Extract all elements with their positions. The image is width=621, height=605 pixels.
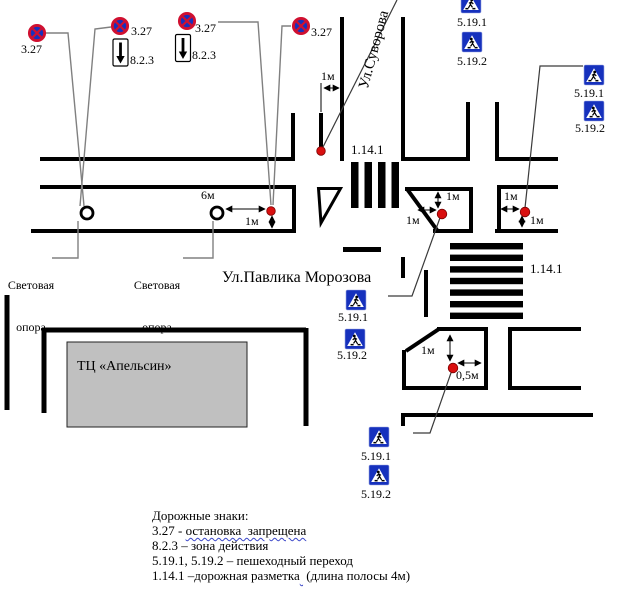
light-pole-label-line1: Световая [127,278,187,292]
leader-line [80,27,111,206]
sign-label-327: 3.27 [21,43,42,56]
sign-label-823: 8.2.3 [130,54,154,67]
light-pole-label: Световая опора [127,250,187,348]
sign-label-5191: 5.19.1 [361,450,391,463]
dimension-label-1m: 1м [406,214,420,227]
sign-position-dot [267,207,276,216]
sign-label-327: 3.27 [311,26,332,39]
pedestrian-crossing-sign-icon [369,465,389,485]
pedestrian-crossing-sign-icon [584,101,604,121]
legend-item-823: 8.2.3 – зона действия [152,538,410,553]
pedestrian-crossing-sign-icon [346,290,366,310]
sign-label-5192: 5.19.2 [337,349,367,362]
street-name-morozova: Ул.Павлика Морозова [222,270,371,287]
no-stopping-sign-icon [29,25,44,40]
building-label: ТЦ «Апельсин» [77,360,172,375]
light-pole-label-line2: опора [1,320,61,334]
zone-arrow-sign-icon [113,39,128,66]
legend-item-519: 5.19.1, 5.19.2 – пешеходный переход [152,553,410,568]
marking-label-1141: 1.14.1 [530,262,563,276]
legend-item-1141-prefix: 1.14.1 –дорожная разметка [152,568,300,583]
zone-arrow-sign-icon [176,35,191,62]
legend-item-327-prefix: 3.27 - [152,523,186,538]
sign-position-dot [520,207,530,217]
dimension-label-1m: 1м [530,214,544,227]
dimension-label-1m: 1м [245,215,259,228]
pedestrian-crossing-sign-icon [461,0,481,13]
light-pole-label-line1: Световая [1,278,61,292]
stop-line-marking [343,247,381,252]
sign-label-327: 3.27 [131,25,152,38]
sign-label-5192: 5.19.2 [575,122,605,135]
shopping-center-block [67,342,247,427]
crosswalk-horizontal-1141 [450,243,523,319]
light-pole-label-line2: опора [127,320,187,334]
sign-position-dot [437,209,447,219]
dimension-label-1m: 1м [421,344,435,357]
legend: Дорожные знаки: 3.27 - остановка запреще… [152,508,410,583]
no-stopping-sign-icon [179,13,194,28]
sign-label-5192: 5.19.2 [457,55,487,68]
legend-item-1141-suffix: (длина полосы 4м) [303,568,410,583]
light-pole-2 [211,207,223,219]
pedestrian-crossing-sign-icon [369,427,389,447]
dimension-label-05m: 0,5м [456,369,479,382]
sign-position-dot [317,147,326,156]
sign-label-5191: 5.19.1 [457,16,487,29]
leader-line [413,370,452,433]
sign-label-5191: 5.19.1 [338,311,368,324]
sign-label-327: 3.27 [195,22,216,35]
no-stopping-sign-icon [112,18,127,33]
light-pole-label: Световая опора [1,250,61,348]
dimension-label-1m: 1м [321,70,335,83]
sign-label-5191: 5.19.1 [574,87,604,100]
pedestrian-crossing-sign-icon [345,329,365,349]
dimension-arrows [226,83,522,363]
legend-item-327: 3.27 - остановка запрещена [152,523,410,538]
legend-item-1141: 1.14.1 –дорожная разметка (длина полосы … [152,568,410,583]
legend-title: Дорожные знаки: [152,508,410,523]
pedestrian-crossing-sign-icon [462,32,482,52]
sign-label-823: 8.2.3 [192,49,216,62]
marking-label-1141: 1.14.1 [351,143,384,157]
sign-label-5192: 5.19.2 [361,488,391,501]
leader-line [46,33,84,206]
road-signs-layout-scheme: 3.27 3.27 8.2.3 3.27 8.2.3 3.27 Ул.Сувор… [0,0,621,605]
dimension-label-1m: 1м [446,190,460,203]
leader-line [273,26,291,205]
leader-line [183,221,213,258]
dimension-label-1m: 1м [504,190,518,203]
legend-item-327-term: остановка запрещена [186,523,307,538]
corner-island-triangle [319,189,341,224]
leader-line [218,22,271,205]
pedestrian-crossing-sign-icon [584,65,604,85]
crosswalk-vertical-1141 [351,162,399,208]
no-stopping-sign-icon [293,18,308,33]
dimension-label-6m: 6м [201,189,215,202]
light-pole-1 [81,207,93,219]
